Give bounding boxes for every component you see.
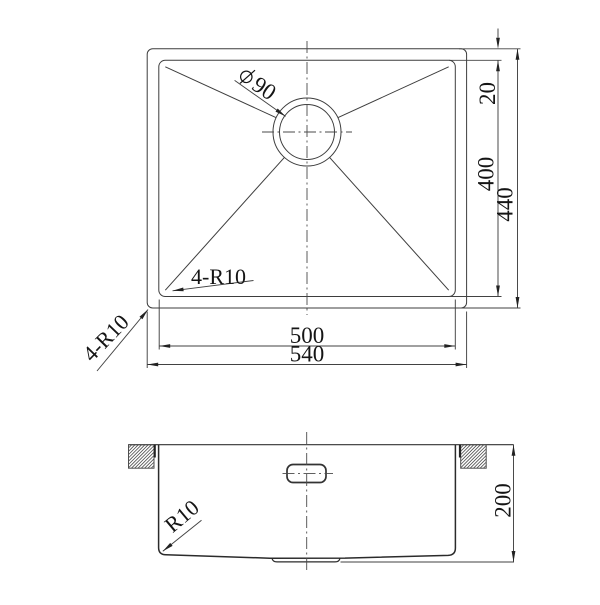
svg-text:440: 440	[493, 187, 518, 222]
svg-text:400: 400	[473, 157, 498, 192]
svg-text:4-R10: 4-R10	[78, 309, 134, 366]
svg-text:540: 540	[290, 342, 325, 367]
svg-text:4-R10: 4-R10	[191, 264, 246, 289]
svg-text:20: 20	[475, 82, 500, 105]
svg-text:200: 200	[490, 483, 515, 518]
svg-text:90: 90	[248, 72, 281, 106]
svg-text:R10: R10	[160, 495, 204, 538]
